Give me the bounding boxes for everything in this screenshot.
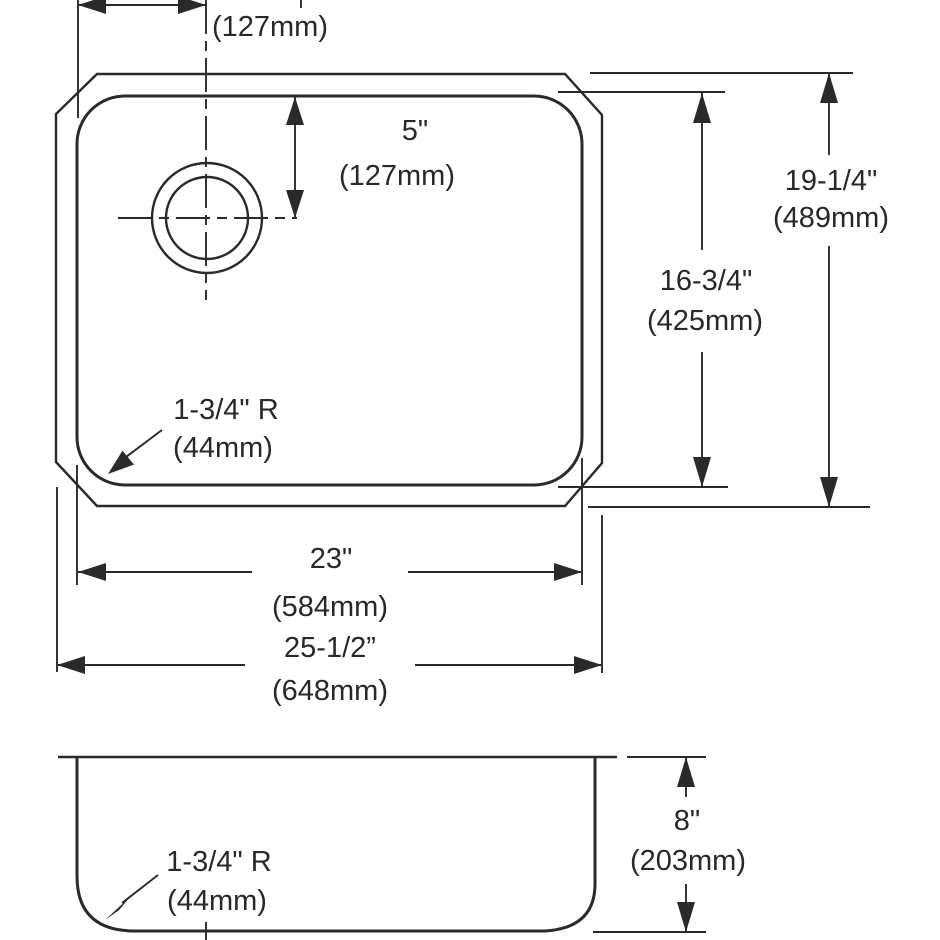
radius-label-line2: (44mm) xyxy=(167,885,267,917)
arrowhead-up xyxy=(820,73,838,103)
radius-label-line2: (44mm) xyxy=(173,432,273,464)
radius-label-line1: 1-3/4" R xyxy=(166,846,271,878)
dim-faucet-offset-horizontal: (127mm) xyxy=(78,0,328,118)
arrowhead-left xyxy=(78,563,106,581)
arrowhead-up xyxy=(677,757,695,787)
sink-bowl-outline xyxy=(77,96,582,485)
leader-line xyxy=(122,430,162,460)
basin-profile xyxy=(77,757,595,931)
dim-bowl-depth: 16-3/4" (425mm) xyxy=(558,92,763,487)
dim-label-mm: (648mm) xyxy=(272,675,388,707)
dim-label-in: 8" xyxy=(674,805,700,837)
arrowhead-up xyxy=(693,93,711,123)
dim-label-in: 25-1/2” xyxy=(284,632,376,664)
leader-line xyxy=(122,875,158,903)
arrowhead-right xyxy=(178,0,206,14)
corner-radius-callout-top-view: 1-3/4" R (44mm) xyxy=(108,394,279,474)
arrowhead-down xyxy=(677,902,695,932)
dim-label-in: 5" xyxy=(402,115,428,147)
dim-label-mm: (203mm) xyxy=(630,845,746,877)
dim-bowl-width: 23" (584mm) xyxy=(77,458,582,623)
dim-label-in: 19-1/4" xyxy=(785,165,878,197)
arrowhead-left xyxy=(57,656,85,674)
dim-label-mm: (425mm) xyxy=(647,305,763,337)
side-view xyxy=(58,757,617,940)
dim-bowl-height: 8" (203mm) xyxy=(593,757,746,932)
dim-label-mm: (584mm) xyxy=(272,591,388,623)
arrowhead-right xyxy=(554,563,582,581)
dim-faucet-offset-vertical: 5" (127mm) xyxy=(286,97,455,218)
radius-label-line1: 1-3/4" R xyxy=(173,394,278,426)
arrowhead-right xyxy=(574,656,602,674)
arrowhead-up xyxy=(286,97,304,125)
dim-label-mm: (489mm) xyxy=(773,202,889,234)
arrowhead-down xyxy=(820,477,838,507)
sink-dimension-drawing: (127mm) 5" (127mm) 16-3/4" (425mm) 19-1/… xyxy=(0,0,940,940)
arrowhead-down xyxy=(693,457,711,487)
dim-label-mm: (127mm) xyxy=(212,11,328,43)
dim-label-in: 16-3/4" xyxy=(660,265,753,297)
dim-label-mm: (127mm) xyxy=(339,160,455,192)
drawing-svg: (127mm) 5" (127mm) 16-3/4" (425mm) 19-1/… xyxy=(0,0,940,940)
sink-outer-rim-outline xyxy=(56,74,602,506)
top-view xyxy=(56,0,602,506)
dim-label-in: 23" xyxy=(310,543,353,575)
arrowhead-left xyxy=(78,0,106,14)
arrowhead-down xyxy=(286,190,304,218)
corner-radius-callout-side-view: 1-3/4" R (44mm) xyxy=(105,846,272,920)
